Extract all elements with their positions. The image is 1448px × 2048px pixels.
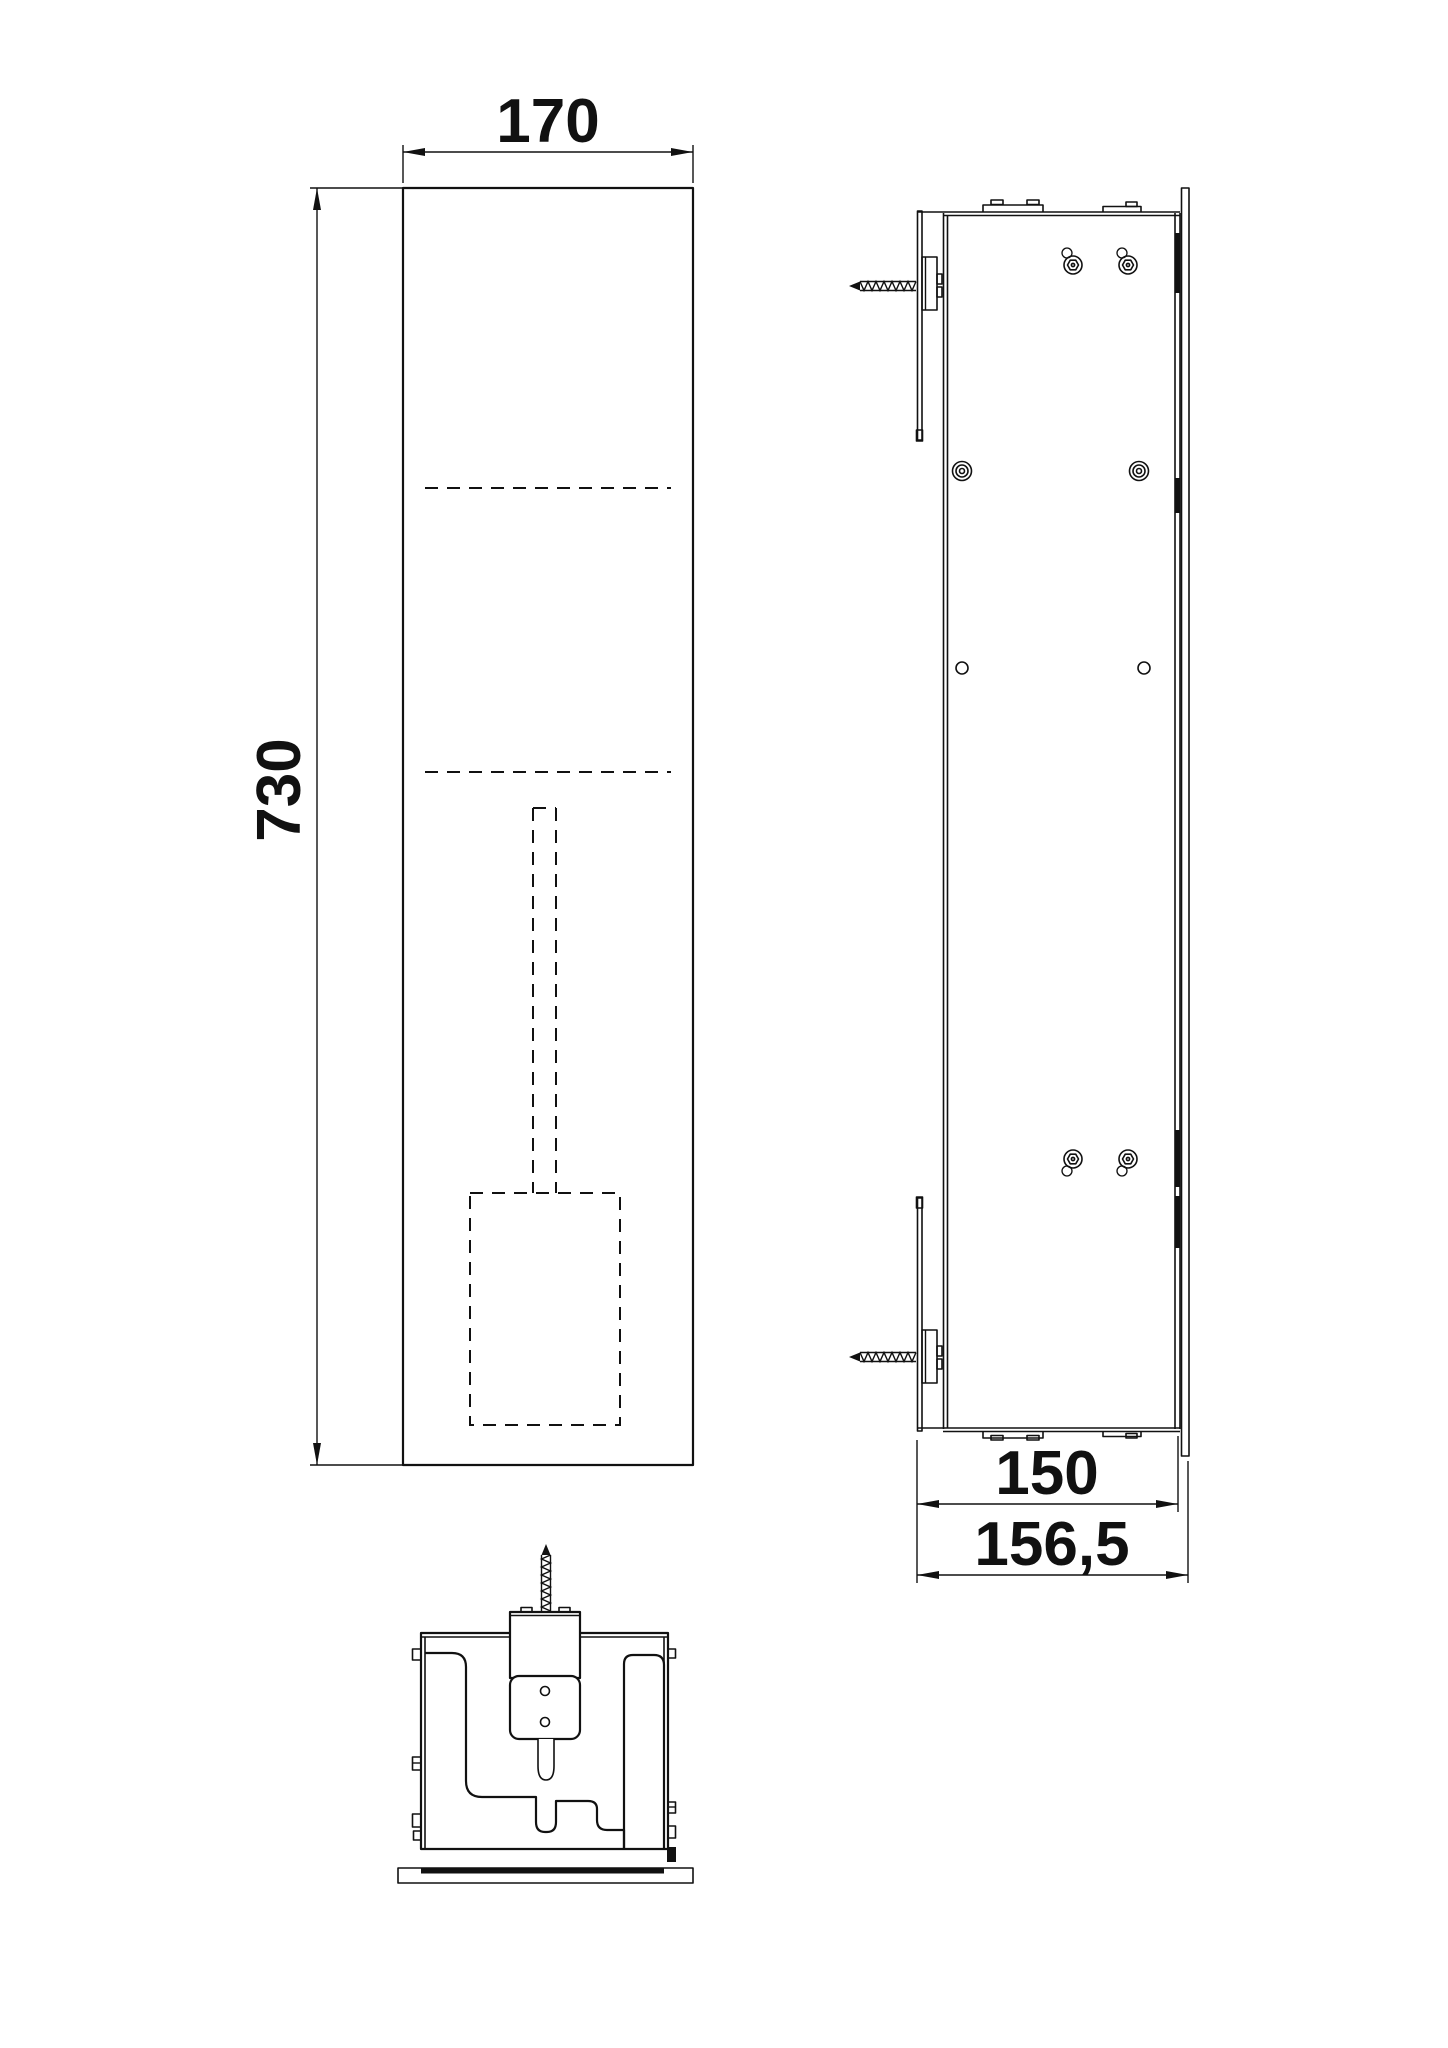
dim-label-total-depth: 156,5 [974,1510,1129,1579]
dimension-front-width: 170 [403,87,693,183]
front-panel-outline [403,188,693,1465]
arrowhead-up-icon [313,188,321,210]
arrowhead-right-icon [671,148,693,156]
mounting-bracket-bottom [849,1197,942,1431]
mounting-bracket-top [849,211,942,441]
dim-label-front-width: 170 [496,87,599,156]
front-view: 170 730 [245,87,693,1465]
rivet-icon [1130,462,1149,481]
side-view: 150 156,5 [849,188,1189,1583]
dimension-front-height: 730 [245,188,403,1465]
arrowhead-left-icon [403,148,425,156]
dim-label-front-height: 730 [245,738,314,841]
wall-flange [1182,188,1190,1456]
arrowhead-down-icon [313,1443,321,1465]
recessed-box [918,212,1180,1432]
mounting-bracket-section [510,1544,580,1678]
box-fasteners [953,248,1151,1176]
screw-head-icon [1064,1150,1082,1168]
top-edge-tabs [983,200,1141,212]
technical-drawing-sheet: 170 730 [0,0,1448,2048]
installation-drawing: 170 730 [0,0,1448,2048]
screw-head-icon [1119,1150,1137,1168]
arrowhead-left-icon [917,1500,939,1508]
screw-head-icon [1119,256,1137,274]
brush-holder-plate [510,1676,580,1780]
left-wall-clips [413,1649,422,1840]
wood-screw-icon [542,1544,551,1611]
hole-icon [956,662,968,674]
hole-icon [1062,1166,1072,1176]
screw-head-icon [1064,256,1082,274]
rivet-icon [953,462,972,481]
dim-label-box-depth: 150 [995,1439,1098,1508]
wood-screw-icon [849,282,916,291]
arrowhead-right-icon [1156,1500,1178,1508]
hole-icon [1117,1166,1127,1176]
arrowhead-left-icon [917,1571,939,1579]
flange-section [398,1868,693,1883]
bottom-view [398,1544,693,1883]
arrowhead-right-icon [1166,1571,1188,1579]
shaft-slot [538,1739,554,1780]
wood-screw-icon [849,1353,916,1362]
hidden-brush-outline [470,808,620,1425]
hole-icon [1138,662,1150,674]
